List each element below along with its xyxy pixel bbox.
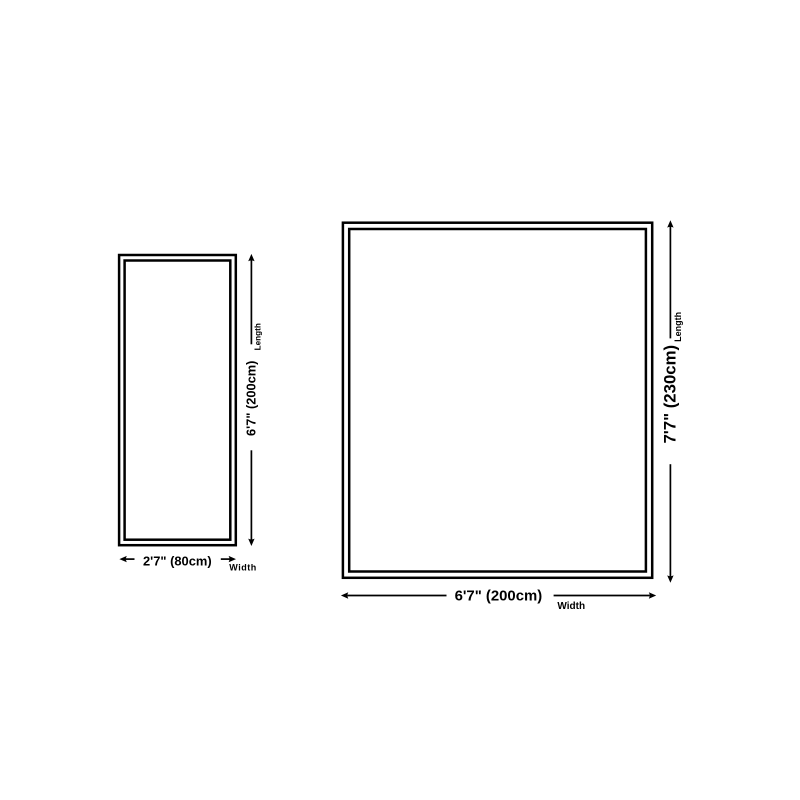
- svg-text:Width: Width: [229, 562, 256, 572]
- svg-text:2'7" (80cm): 2'7" (80cm): [143, 554, 212, 569]
- svg-text:Length: Length: [254, 323, 263, 350]
- svg-text:Width: Width: [557, 601, 585, 612]
- svg-text:7'7" (230cm): 7'7" (230cm): [661, 345, 680, 444]
- svg-text:6'7" (200cm): 6'7" (200cm): [455, 589, 543, 605]
- svg-text:6'7" (200cm): 6'7" (200cm): [243, 361, 258, 436]
- svg-text:Length: Length: [673, 312, 683, 342]
